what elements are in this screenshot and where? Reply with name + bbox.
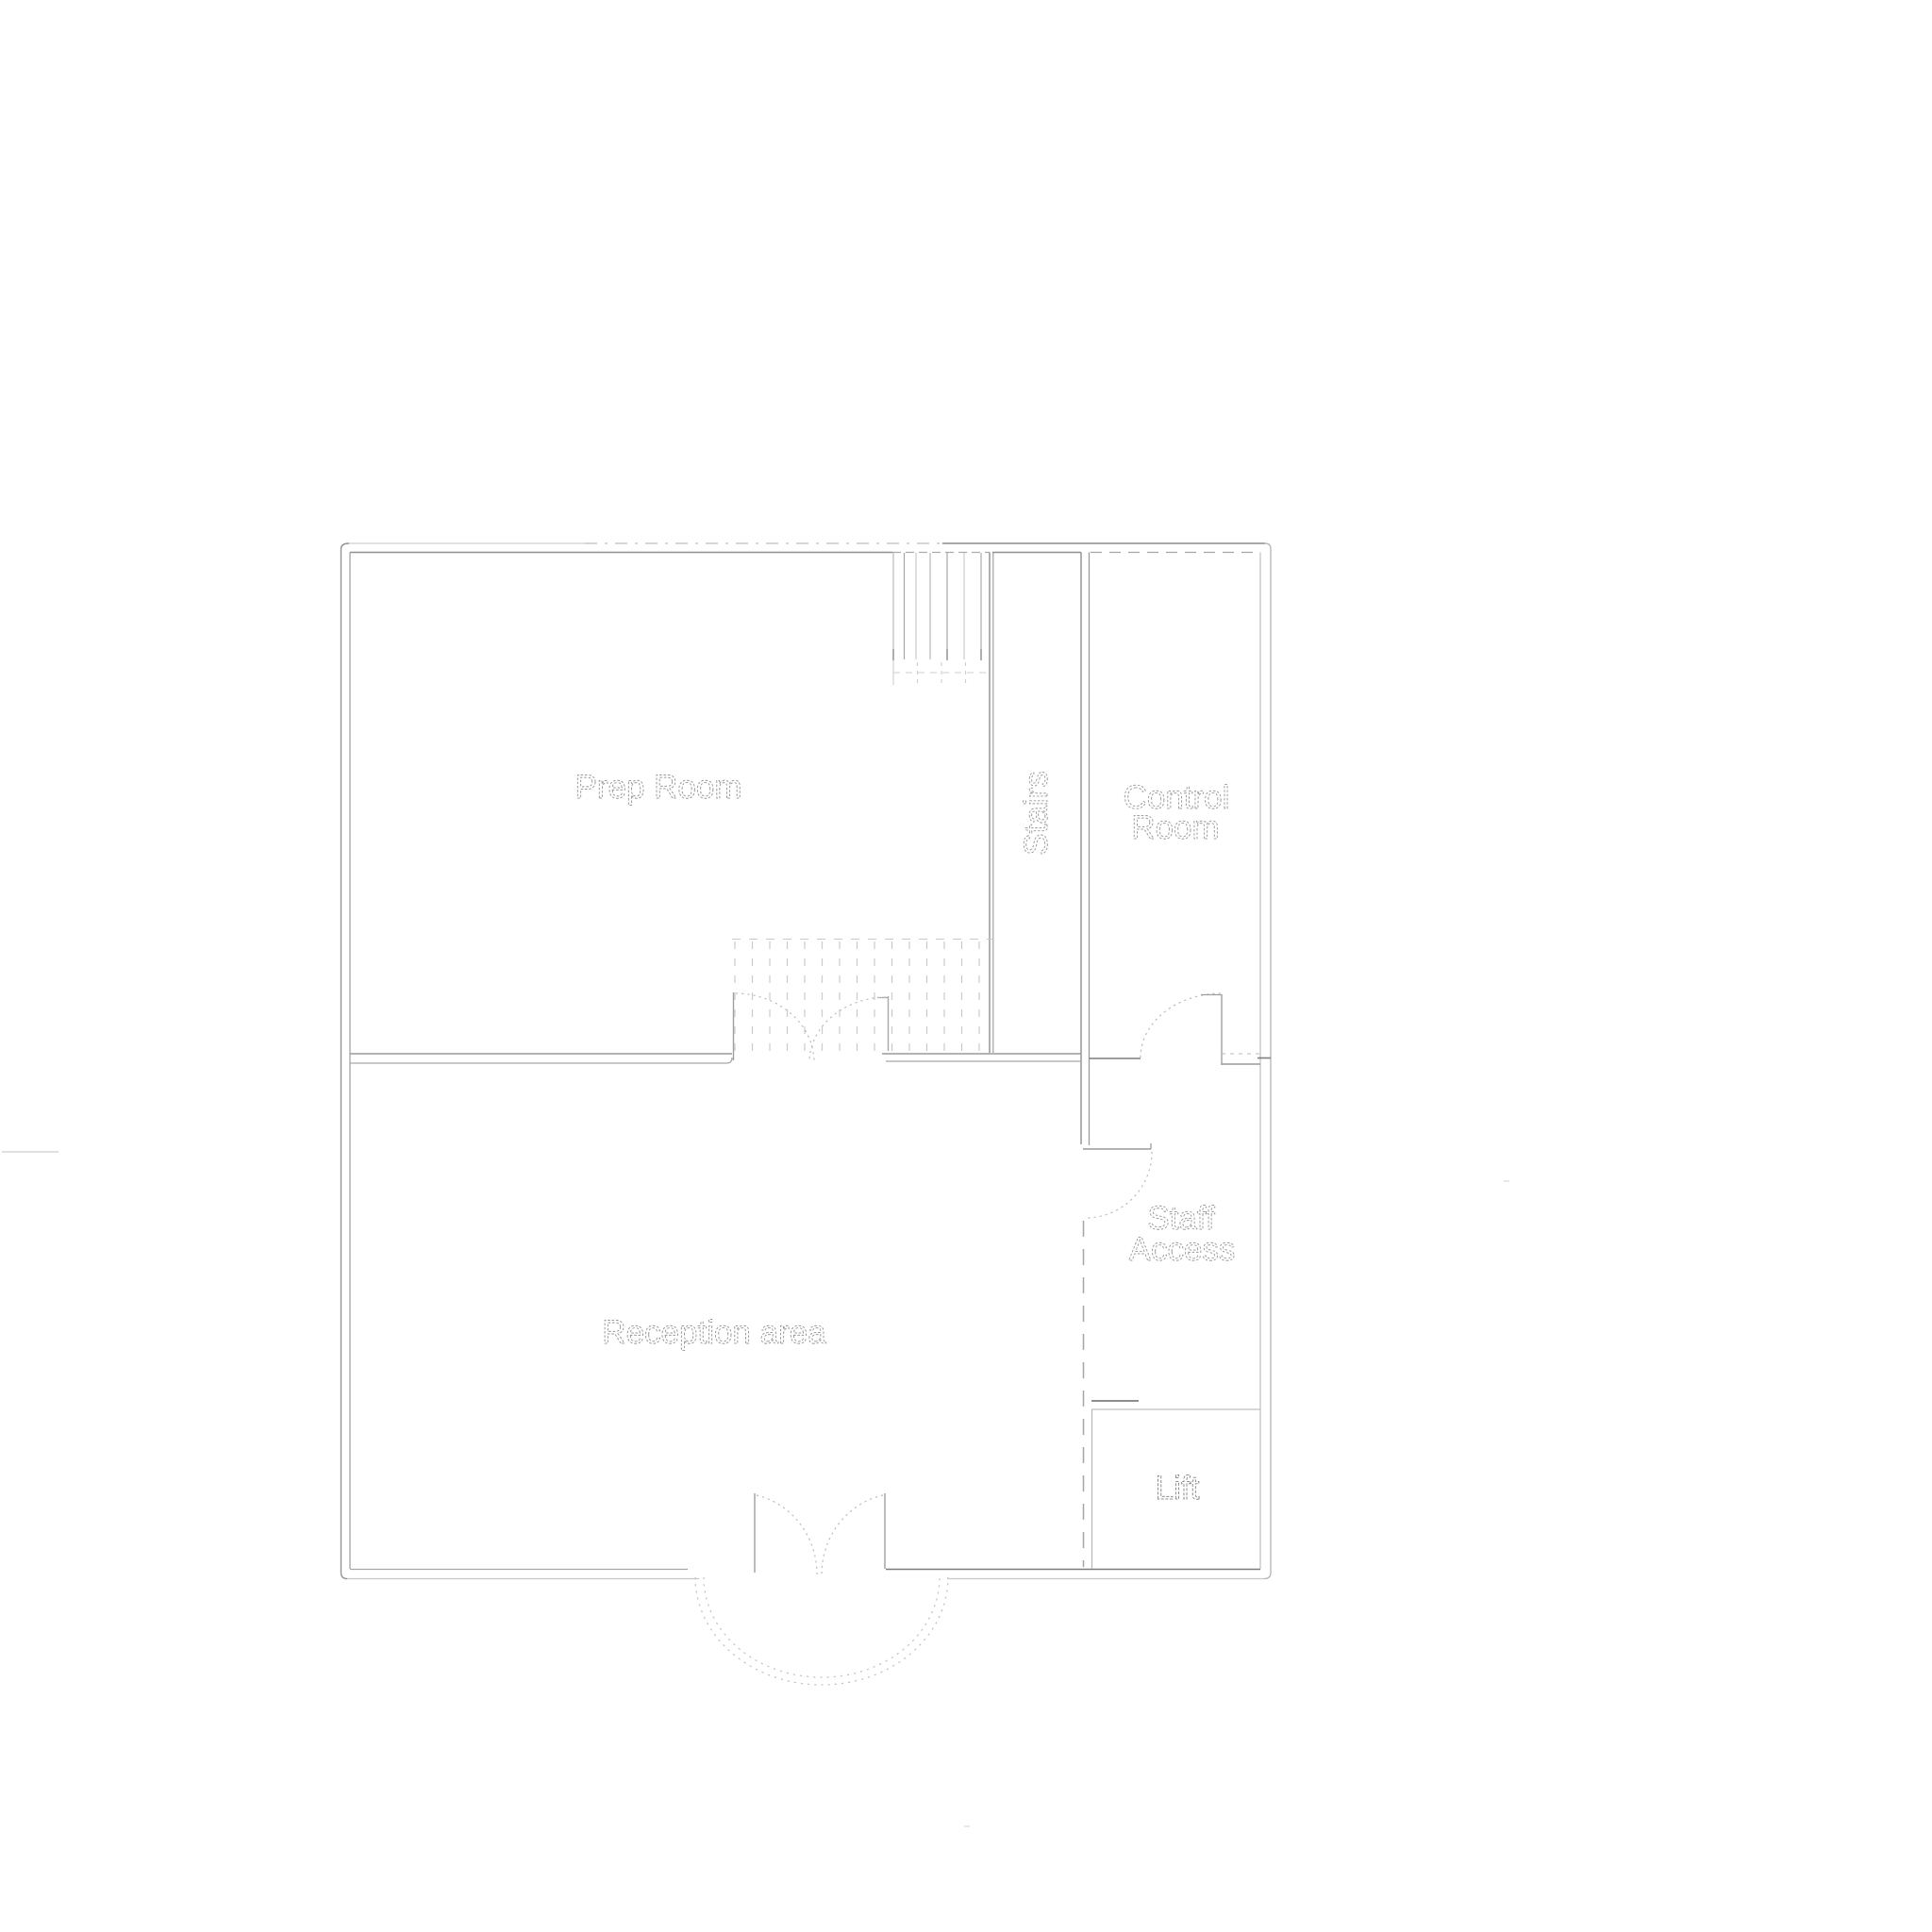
svg-text:Access: Access xyxy=(1129,1231,1236,1268)
svg-text:Reception area: Reception area xyxy=(602,1314,826,1351)
svg-text:Stairs: Stairs xyxy=(1018,771,1055,855)
svg-text:Room: Room xyxy=(1131,809,1219,846)
svg-text:Lift: Lift xyxy=(1156,1470,1200,1507)
svg-text:Prep Room: Prep Room xyxy=(575,769,741,806)
